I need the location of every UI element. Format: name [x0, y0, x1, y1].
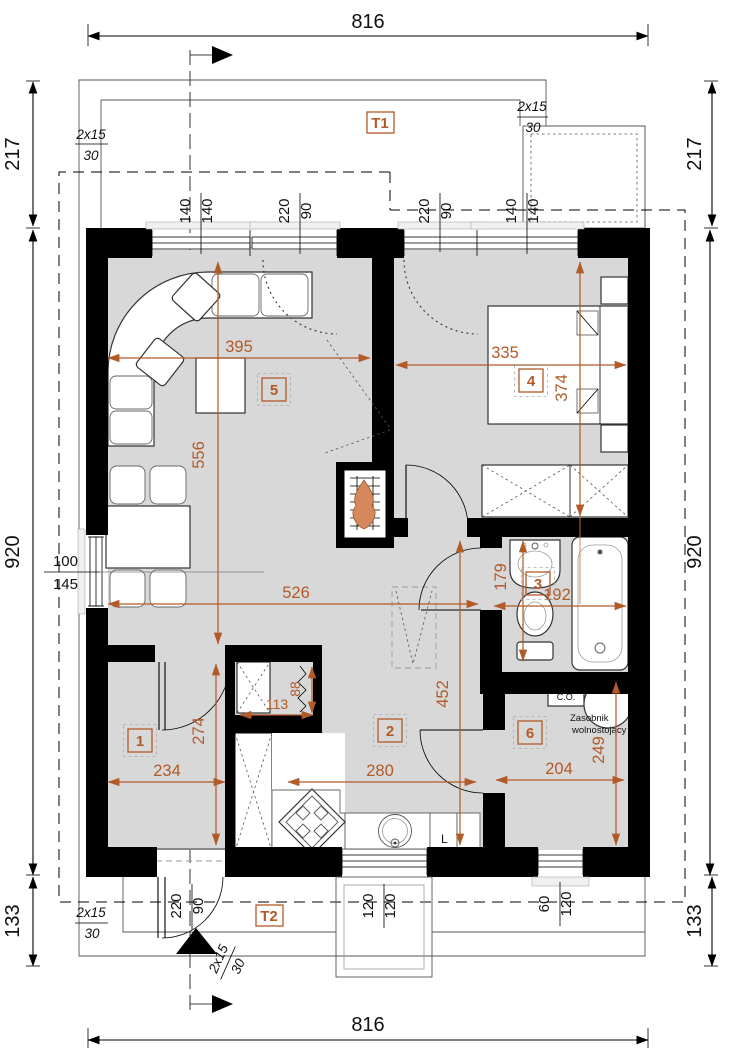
- dim-top-left-217: 217: [2, 137, 24, 170]
- opening-entry-a: 220: [168, 893, 185, 918]
- fridge-label: L: [441, 832, 448, 846]
- roof-note-tl-b: 30: [83, 148, 99, 163]
- tank-label-1: Zasobnik: [570, 713, 609, 724]
- dim-room1-width: 234: [153, 762, 181, 780]
- dim-bedroom-height: 374: [553, 374, 571, 402]
- opening-left-a: 100: [53, 553, 78, 570]
- chair: [150, 466, 186, 504]
- room-label-2: 2: [386, 723, 394, 740]
- roof-note-tr-a: 2x15: [516, 99, 547, 114]
- dim-outer-right: 920: [684, 535, 706, 568]
- opening-top2-a: 220: [276, 198, 293, 223]
- room-label-1: 1: [136, 733, 144, 750]
- opening-bright-b: 120: [558, 891, 575, 916]
- dim-outer-bottom: 816: [351, 1014, 384, 1036]
- dim-bath-height: 179: [492, 563, 510, 591]
- chair: [110, 570, 145, 607]
- opening-top4-b: 140: [525, 198, 542, 223]
- roof-note-bl-b: 30: [84, 926, 100, 941]
- opening-top3-a: 220: [416, 198, 433, 223]
- terrace-t1-inner: [531, 134, 637, 222]
- tank-label-2: wolnostojący: [571, 725, 627, 736]
- room-label-4: 4: [527, 373, 536, 390]
- dim-outer-left: 920: [2, 535, 24, 568]
- terrace-label-t2: T2: [260, 908, 278, 925]
- dim-living-width: 395: [225, 338, 253, 356]
- room-label-6: 6: [526, 725, 534, 742]
- opening-bmid-a: 120: [360, 893, 377, 918]
- opening-bmid-b: 120: [382, 893, 399, 918]
- dim-living-height: 556: [190, 441, 208, 469]
- roof-note-entry-b: 30: [228, 956, 248, 976]
- window-bottom-right: [532, 849, 589, 886]
- opening-entry-b: 90: [190, 898, 207, 915]
- dim-utility-width: 204: [545, 760, 573, 778]
- dim-kitchen-width: 280: [366, 762, 394, 780]
- dim-bedroom-width: 335: [491, 344, 519, 362]
- dim-utility-height: 249: [590, 736, 608, 764]
- dim-bottom-left-133: 133: [2, 904, 24, 937]
- nightstand: [601, 425, 628, 452]
- window-left: [78, 529, 104, 614]
- dim-outer-top: 816: [351, 11, 384, 33]
- floor-plan-canvas: L kocioł C.O. Zasobnik wolnostojący: [0, 0, 738, 1050]
- section-flag-bottom-icon: [212, 995, 233, 1013]
- coffee-table: [196, 358, 245, 413]
- opening-top4-a: 140: [503, 198, 520, 223]
- roof-note-bl-a: 2x15: [75, 905, 106, 920]
- bedroom-wardrobe: [482, 465, 628, 517]
- opening-top3-b: 90: [438, 203, 455, 220]
- dim-room1-height: 274: [190, 717, 208, 745]
- room-label-5: 5: [270, 382, 278, 399]
- fireplace-icon: [344, 470, 386, 538]
- room-label-3: 3: [534, 576, 542, 593]
- opening-top1-a: 140: [177, 198, 194, 223]
- dim-top-right-217: 217: [684, 137, 706, 170]
- opening-left-b: 145: [53, 576, 78, 593]
- chair: [150, 570, 186, 607]
- dim-kitchen-height: 452: [434, 680, 452, 708]
- chair: [110, 466, 145, 504]
- dim-across-width: 526: [282, 584, 310, 602]
- roof-note-tr-b: 30: [525, 120, 541, 135]
- dining-table: [106, 506, 190, 568]
- terrace-label-t1: T1: [371, 115, 389, 132]
- section-flag-top-icon: [212, 46, 233, 64]
- dim-bottom-right-133: 133: [684, 904, 706, 937]
- opening-top2-b: 90: [298, 203, 315, 220]
- opening-top1-b: 140: [199, 198, 216, 223]
- dim-closet-width: 113: [266, 696, 289, 712]
- dim-closet-height: 88: [287, 681, 303, 697]
- floor-plan-page: L kocioł C.O. Zasobnik wolnostojący: [0, 0, 738, 1050]
- nightstand: [601, 277, 628, 304]
- opening-bright-a: 60: [536, 896, 553, 913]
- roof-note-tl-a: 2x15: [75, 127, 106, 142]
